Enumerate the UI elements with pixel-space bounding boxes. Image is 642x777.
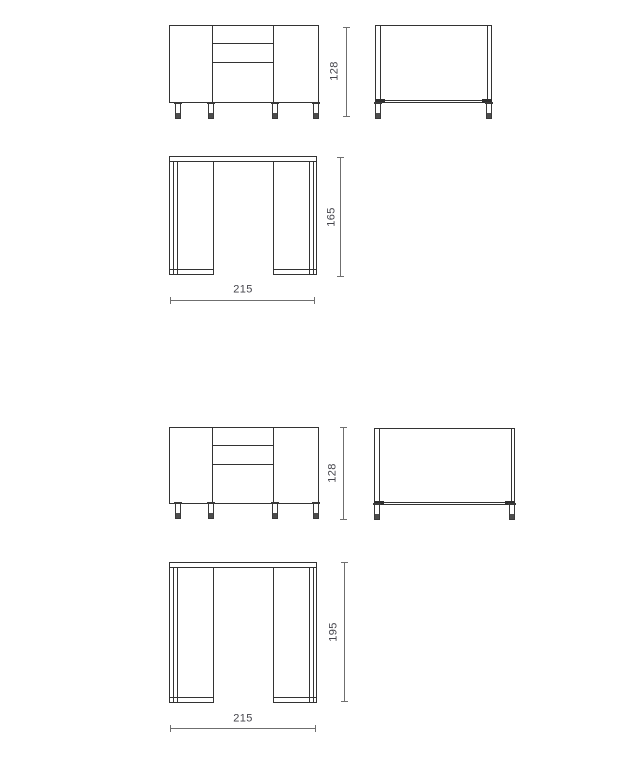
leg — [175, 503, 181, 519]
width-dimension-line — [170, 300, 315, 301]
plan-right-pedestal — [273, 567, 317, 703]
front-divider-left — [212, 26, 213, 102]
side-bottom-rail-line — [379, 502, 511, 503]
leg — [374, 504, 380, 520]
plan-left-panel-line — [177, 162, 178, 274]
plan-right-bottom-line — [274, 697, 316, 698]
plan-right-pedestal — [273, 161, 317, 275]
depth-dimension-label: 195 — [329, 622, 340, 642]
plan-left-pedestal — [169, 567, 214, 703]
plan-left-bottom-line — [170, 697, 213, 698]
leg — [313, 503, 319, 519]
side-body-outline — [374, 428, 515, 505]
plan-left-panel-line — [173, 162, 174, 274]
drawer-line-1 — [213, 43, 273, 44]
side-panel-inner-line-right — [511, 429, 512, 504]
width-dimension-line — [170, 728, 316, 729]
height-dimension-line — [343, 427, 344, 520]
leg — [208, 503, 214, 519]
plan-right-panel-line — [309, 162, 310, 274]
plan-left-bottom-line — [170, 269, 213, 270]
drawer-line-2 — [213, 62, 273, 63]
leg — [375, 103, 381, 119]
plan-left-panel-line — [173, 568, 174, 702]
plan-left-panel-line — [177, 568, 178, 702]
height-dimension-line — [346, 27, 347, 117]
side-bottom-rail-line — [380, 100, 487, 101]
front-divider-left — [212, 428, 213, 503]
drawer-line-1 — [213, 445, 273, 446]
front-divider-right — [273, 26, 274, 102]
technical-drawing-canvas: 128 165 215 1 — [0, 0, 642, 777]
leg — [509, 504, 515, 520]
depth-dimension-line — [340, 157, 341, 277]
side-panel-inner-line-right — [487, 26, 488, 102]
side-panel-inner-line-left — [380, 26, 381, 102]
drawer-line-2 — [213, 464, 273, 465]
width-dimension-label: 215 — [233, 285, 253, 296]
leg — [272, 103, 278, 119]
front-body-outline — [169, 427, 319, 504]
width-dimension-label: 215 — [233, 714, 253, 725]
leg — [313, 103, 319, 119]
depth-dimension-line — [344, 562, 345, 702]
plan-right-panel-line — [309, 568, 310, 702]
leg — [175, 103, 181, 119]
front-divider-right — [273, 428, 274, 503]
side-body-outline — [375, 25, 492, 103]
leg — [272, 503, 278, 519]
depth-dimension-label: 165 — [327, 207, 338, 227]
plan-right-panel-line — [313, 568, 314, 702]
plan-left-pedestal — [169, 161, 214, 275]
side-panel-inner-line-left — [379, 429, 380, 504]
height-dimension-label: 128 — [330, 61, 341, 81]
leg — [486, 103, 492, 119]
height-dimension-label: 128 — [328, 463, 339, 483]
plan-right-panel-line — [313, 162, 314, 274]
leg — [208, 103, 214, 119]
front-body-outline — [169, 25, 319, 103]
plan-right-bottom-line — [274, 269, 316, 270]
